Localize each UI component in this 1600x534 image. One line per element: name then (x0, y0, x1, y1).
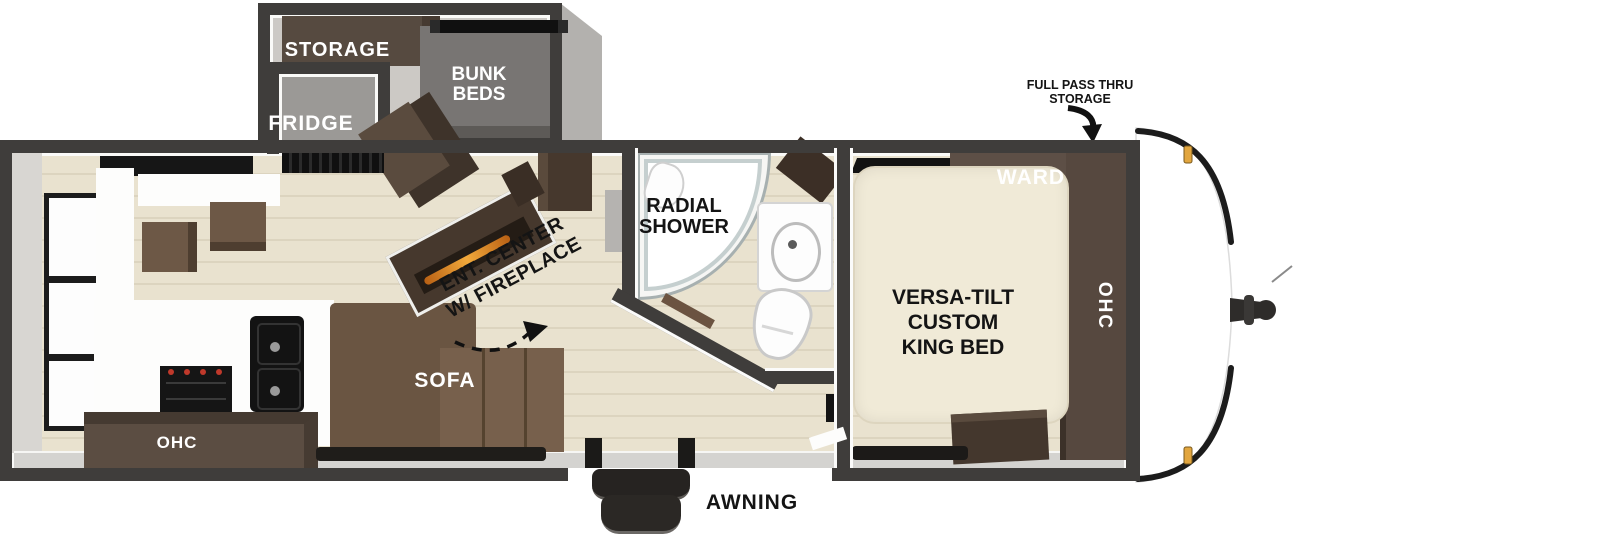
sink-faucet (270, 342, 280, 352)
bathroom-vanity (757, 202, 833, 292)
sofa-cushion-seam (482, 348, 485, 452)
bunk-beds-label: BUNK BEDS (438, 65, 520, 105)
floorplan-canvas: STORAGE BUNK BEDS FRIDGE RADIAL SHOWER E… (0, 0, 1600, 534)
marker-light (1184, 146, 1192, 163)
kitchen-ohc-label: OHC (147, 434, 207, 452)
sofa-rug (316, 447, 546, 461)
awning-label: AWNING (696, 492, 808, 514)
left-interior-wall-face (12, 153, 42, 453)
bedroom-rug (852, 446, 968, 460)
bedroom-ohc-label: OHC (1085, 271, 1123, 341)
sofa-label: SOFA (406, 370, 484, 392)
radial-shower-label: RADIAL SHOWER (624, 196, 744, 238)
hitch-tongue (1230, 298, 1262, 322)
dinette-chair (210, 202, 266, 251)
stove-cooktop (160, 366, 232, 414)
bunk-label-line2: BEDS (438, 85, 520, 105)
vanity-faucet (788, 240, 797, 249)
ward-label: WARD (990, 167, 1072, 189)
bed-label-line2: CUSTOM (858, 310, 1048, 335)
bedroom-divider-wall (834, 148, 853, 468)
bunk-led-light (430, 20, 568, 33)
rear-wall (0, 140, 12, 481)
vanity-basin (771, 222, 821, 282)
bottom-sidewall-left (8, 468, 568, 481)
stove-knob (168, 369, 174, 375)
window-mullion (49, 276, 103, 283)
front-cap (1136, 128, 1232, 482)
pass-thru-line1: FULL PASS THRU (1014, 79, 1146, 93)
entry-door-post (585, 438, 602, 468)
bed-label-line1: VERSA-TILT (858, 285, 1048, 310)
sofa-seats (440, 348, 564, 452)
stove-knob (200, 369, 206, 375)
sink-faucet (270, 386, 280, 396)
pass-thru-callout: FULL PASS THRU STORAGE (1014, 79, 1146, 106)
bedroom-door-frame (826, 394, 834, 422)
kitchen-counter-side (96, 168, 134, 314)
dinette-chair (142, 222, 197, 272)
shower-label-line2: SHOWER (624, 217, 744, 238)
marker-light (1184, 447, 1192, 464)
hitch-coupler (1256, 300, 1276, 320)
bottom-sidewall-right (832, 468, 1134, 481)
stove-knob (216, 369, 222, 375)
kitchen-sink (250, 316, 304, 412)
entry-door-post (678, 438, 695, 468)
entry-steps-lower (601, 495, 681, 534)
stove-grate (166, 398, 226, 400)
front-cap-bottom-trim (1138, 368, 1231, 479)
stove-knob (184, 369, 190, 375)
shower-label-line1: RADIAL (624, 196, 744, 217)
stove-grate (166, 382, 226, 384)
toilet-seat-line (762, 324, 794, 335)
pass-thru-arrow (1068, 108, 1093, 130)
top-sidewall (8, 140, 1132, 153)
breakaway-cable (1272, 266, 1292, 282)
front-wall (1126, 140, 1140, 481)
bunk-label-line1: BUNK (438, 65, 520, 85)
king-bed-label: VERSA-TILT CUSTOM KING BED (858, 285, 1048, 360)
pass-thru-line2: STORAGE (1014, 93, 1146, 107)
front-cap-top-trim (1138, 131, 1231, 242)
hitch-jack (1244, 295, 1254, 325)
sofa-cushion-seam (524, 348, 527, 452)
fridge-label: FRIDGE (256, 113, 366, 135)
storage-label: STORAGE (270, 40, 405, 61)
bed-label-line3: KING BED (858, 335, 1048, 360)
linen-cabinet (605, 190, 623, 252)
